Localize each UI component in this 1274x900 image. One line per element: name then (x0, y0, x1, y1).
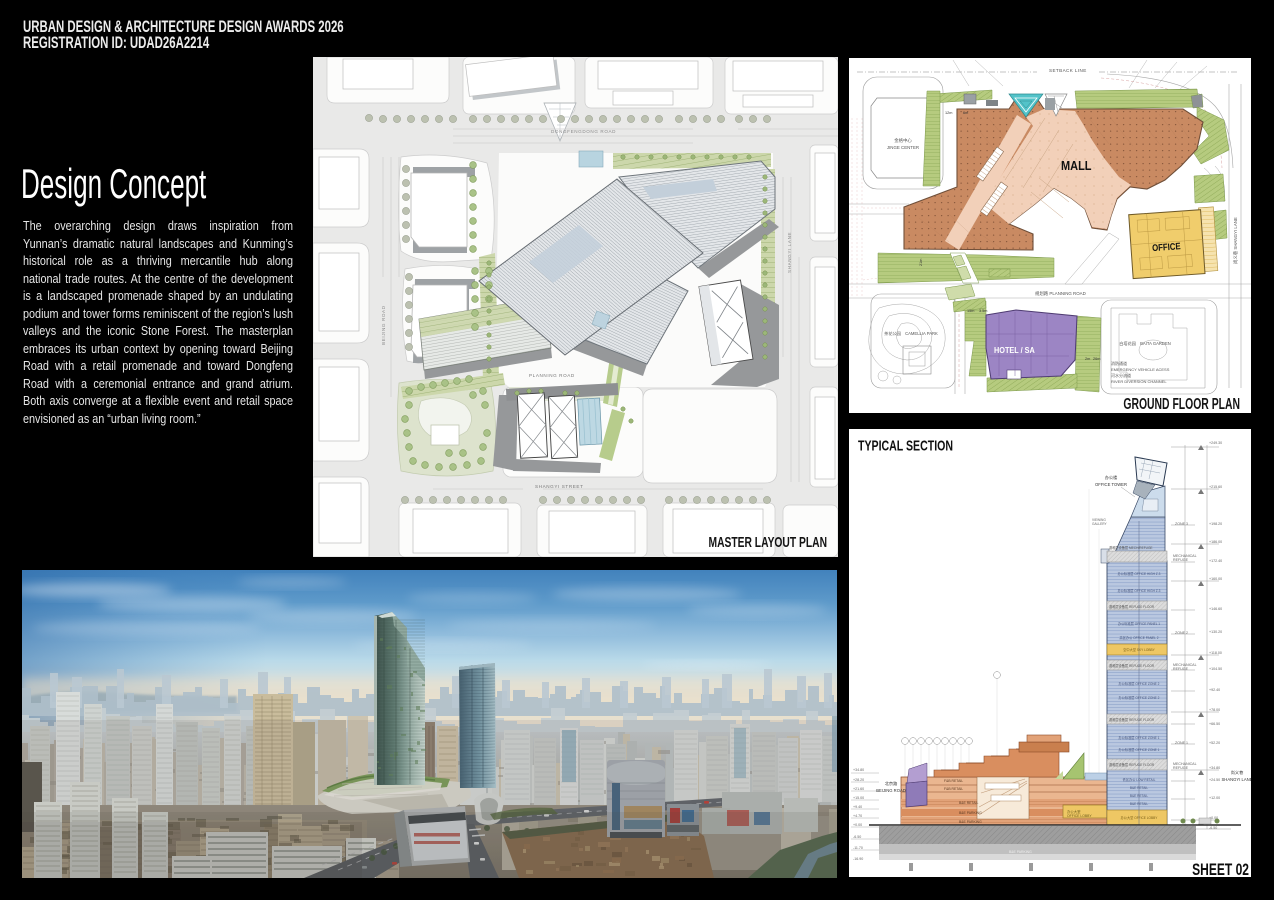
svg-text:白塔花园 BAITA GARDEN: 白塔花园 BAITA GARDEN (1119, 340, 1171, 347)
svg-text:BEIJING ROAD: BEIJING ROAD (876, 788, 906, 793)
svg-text:3.5m: 3.5m (979, 309, 987, 313)
svg-text:办公标准层 OFFICE ZONE 1: 办公标准层 OFFICE ZONE 1 (1119, 735, 1160, 740)
svg-text:GALLERY: GALLERY (1092, 522, 1108, 526)
svg-text:+130.20: +130.20 (1209, 630, 1222, 634)
svg-text:B&E PARKING: B&E PARKING (959, 811, 982, 815)
svg-text:+92.40: +92.40 (1209, 688, 1220, 692)
svg-text:避难层设备层 REFUGE FLOOR: 避难层设备层 REFUGE FLOOR (1109, 762, 1155, 767)
svg-text:ZONE 2: ZONE 2 (1175, 631, 1188, 635)
svg-text:低区办公 LOW RETAIL: 低区办公 LOW RETAIL (1123, 777, 1156, 782)
svg-text:REFUGE: REFUGE (1173, 667, 1189, 671)
svg-text:RIVER DIVERSION CHANNEL: RIVER DIVERSION CHANNEL (1111, 379, 1167, 384)
svg-text:避难层设备层 REFUGE FLOOR: 避难层设备层 REFUGE FLOOR (1109, 717, 1155, 722)
svg-text:OFFICE TOWER: OFFICE TOWER (1095, 482, 1127, 487)
svg-text:-16.90: -16.90 (853, 857, 863, 861)
svg-text:+28.20: +28.20 (853, 778, 864, 782)
svg-text:+215.60: +215.60 (1209, 485, 1222, 489)
svg-text:HOTEL / SA: HOTEL / SA (994, 345, 1035, 355)
svg-text:OFFICE: OFFICE (1152, 240, 1181, 253)
svg-text:ZONE 3: ZONE 3 (1175, 522, 1188, 526)
svg-text:消防通道: 消防通道 (1111, 360, 1127, 366)
svg-text:BEIJING ROAD: BEIJING ROAD (381, 305, 386, 345)
svg-text:+9.40: +9.40 (853, 805, 862, 809)
svg-text:SHANGYI LANE: SHANGYI LANE (1222, 777, 1251, 782)
svg-text:+34.80: +34.80 (1209, 766, 1220, 770)
svg-text:B&E PARKING: B&E PARKING (1009, 850, 1032, 854)
svg-text:+104.50: +104.50 (1209, 667, 1222, 671)
svg-text:15m: 15m (967, 309, 974, 313)
svg-text:EMERGENCY VEHICLE ACESS: EMERGENCY VEHICLE ACESS (1111, 367, 1170, 372)
svg-text:ZONE 1: ZONE 1 (1175, 741, 1188, 745)
svg-text:避难层设备层 MECH/REFUGE: 避难层设备层 MECH/REFUGE (1109, 545, 1153, 550)
svg-text:DONGFENGDONG ROAD: DONGFENGDONG ROAD (551, 129, 616, 134)
svg-text:+4.70: +4.70 (853, 814, 862, 818)
svg-text:JINGE CENTER: JINGE CENTER (887, 145, 919, 150)
svg-text:+186.00: +186.00 (1209, 540, 1222, 544)
svg-text:空中大堂 SKY LOBBY: 空中大堂 SKY LOBBY (1123, 647, 1155, 652)
svg-text:+21.60: +21.60 (853, 787, 864, 791)
svg-text:+66.50: +66.50 (1209, 722, 1220, 726)
svg-text:26m: 26m (1093, 357, 1100, 361)
svg-text:+160.00: +160.00 (1209, 577, 1222, 581)
svg-text:避难层设备层 REFUGE FLOOR: 避难层设备层 REFUGE FLOOR (1109, 604, 1155, 609)
svg-text:-11.70: -11.70 (853, 846, 863, 850)
svg-text:办公标准层 OFFICE PANEL 1: 办公标准层 OFFICE PANEL 1 (1118, 621, 1160, 626)
svg-text:+146.60: +146.60 (1209, 607, 1222, 611)
svg-text:+118.00: +118.00 (1209, 651, 1222, 655)
svg-text:21m: 21m (919, 259, 923, 266)
svg-text:+24.50: +24.50 (1209, 778, 1220, 782)
svg-text:B&E RETAIL: B&E RETAIL (1130, 786, 1148, 790)
svg-text:办公大堂 OFFICE LOBBY: 办公大堂 OFFICE LOBBY (1121, 815, 1159, 820)
svg-text:+15.00: +15.00 (853, 796, 864, 800)
svg-text:MASTER LAYOUT PLAN: MASTER LAYOUT PLAN (709, 534, 827, 550)
svg-text:-6.50: -6.50 (1209, 826, 1217, 830)
svg-text:+172.40: +172.40 (1209, 559, 1222, 563)
svg-text:MALL: MALL (1061, 159, 1092, 173)
svg-text:TYPICAL SECTION: TYPICAL SECTION (858, 438, 953, 454)
svg-text:2m: 2m (1085, 357, 1090, 361)
svg-text:办公标准层 OFFICE HIGH Z.3: 办公标准层 OFFICE HIGH Z.3 (1118, 571, 1161, 576)
svg-text:B&E PARKING: B&E PARKING (959, 820, 982, 824)
svg-text:12m: 12m (945, 111, 952, 115)
svg-text:REFUGE: REFUGE (1173, 766, 1189, 770)
svg-text:办公标准层 OFFICE ZONE 2: 办公标准层 OFFICE ZONE 2 (1119, 681, 1160, 686)
svg-text:F&B RETAIL: F&B RETAIL (944, 787, 963, 791)
svg-text:GROUND FLOOR PLAN: GROUND FLOOR PLAN (1123, 395, 1240, 413)
svg-text:+249.30: +249.30 (1209, 441, 1222, 445)
svg-text:+0.00: +0.00 (853, 823, 862, 827)
svg-text:B&E RETAIL: B&E RETAIL (959, 801, 978, 805)
svg-text:金格中心: 金格中心 (894, 137, 912, 144)
svg-text:REFUGE: REFUGE (1173, 558, 1189, 562)
svg-text:尚义巷: 尚义巷 (1231, 769, 1244, 776)
svg-text:+78.00: +78.00 (1209, 708, 1220, 712)
svg-text:避难层设备层 REFUGE FLOOR: 避难层设备层 REFUGE FLOOR (1109, 663, 1155, 668)
svg-text:PLANNING ROAD: PLANNING ROAD (529, 373, 575, 378)
svg-text:办公标准层 OFFICE HIGH Z.3: 办公标准层 OFFICE HIGH Z.3 (1118, 588, 1161, 593)
svg-text:办公标准层 OFFICE ZONE 1: 办公标准层 OFFICE ZONE 1 (1119, 747, 1160, 752)
svg-text:OFFICE LOBBY: OFFICE LOBBY (1067, 814, 1092, 818)
svg-text:办公楼: 办公楼 (1105, 474, 1118, 481)
svg-text:+52.20: +52.20 (1209, 741, 1220, 745)
svg-text:北京路: 北京路 (885, 780, 898, 787)
svg-text:+34.80: +34.80 (853, 768, 864, 772)
svg-text:SHANGYI STREET: SHANGYI STREET (535, 484, 583, 489)
svg-text:+12.00: +12.00 (1209, 796, 1220, 800)
svg-text:+198.20: +198.20 (1209, 522, 1222, 526)
svg-text:办公标准层 OFFICE ZONE 2: 办公标准层 OFFICE ZONE 2 (1119, 695, 1160, 700)
svg-text:尚义巷 SHANGYI LANE: 尚义巷 SHANGYI LANE (1232, 217, 1239, 264)
svg-text:F&B RETAIL: F&B RETAIL (944, 779, 963, 783)
svg-text:茶花公园 CAMELLIA PARK: 茶花公园 CAMELLIA PARK (884, 330, 938, 337)
svg-text:规划路 PLANNING ROAD: 规划路 PLANNING ROAD (1035, 290, 1086, 297)
svg-text:6m: 6m (963, 111, 968, 115)
svg-text:高区办公 OFFICE PANEL 2: 高区办公 OFFICE PANEL 2 (1120, 635, 1159, 640)
svg-text:SHEET 02: SHEET 02 (1192, 861, 1249, 877)
svg-text:SETBACK LINE: SETBACK LINE (1049, 68, 1087, 73)
svg-text:B&E RETAIL: B&E RETAIL (1130, 802, 1148, 806)
svg-text:SHANGYI LANE: SHANGYI LANE (787, 232, 792, 273)
svg-text:-6.50: -6.50 (853, 835, 861, 839)
svg-text:河水分流道: 河水分流道 (1111, 372, 1131, 378)
svg-text:B&E RETAIL: B&E RETAIL (1130, 794, 1148, 798)
